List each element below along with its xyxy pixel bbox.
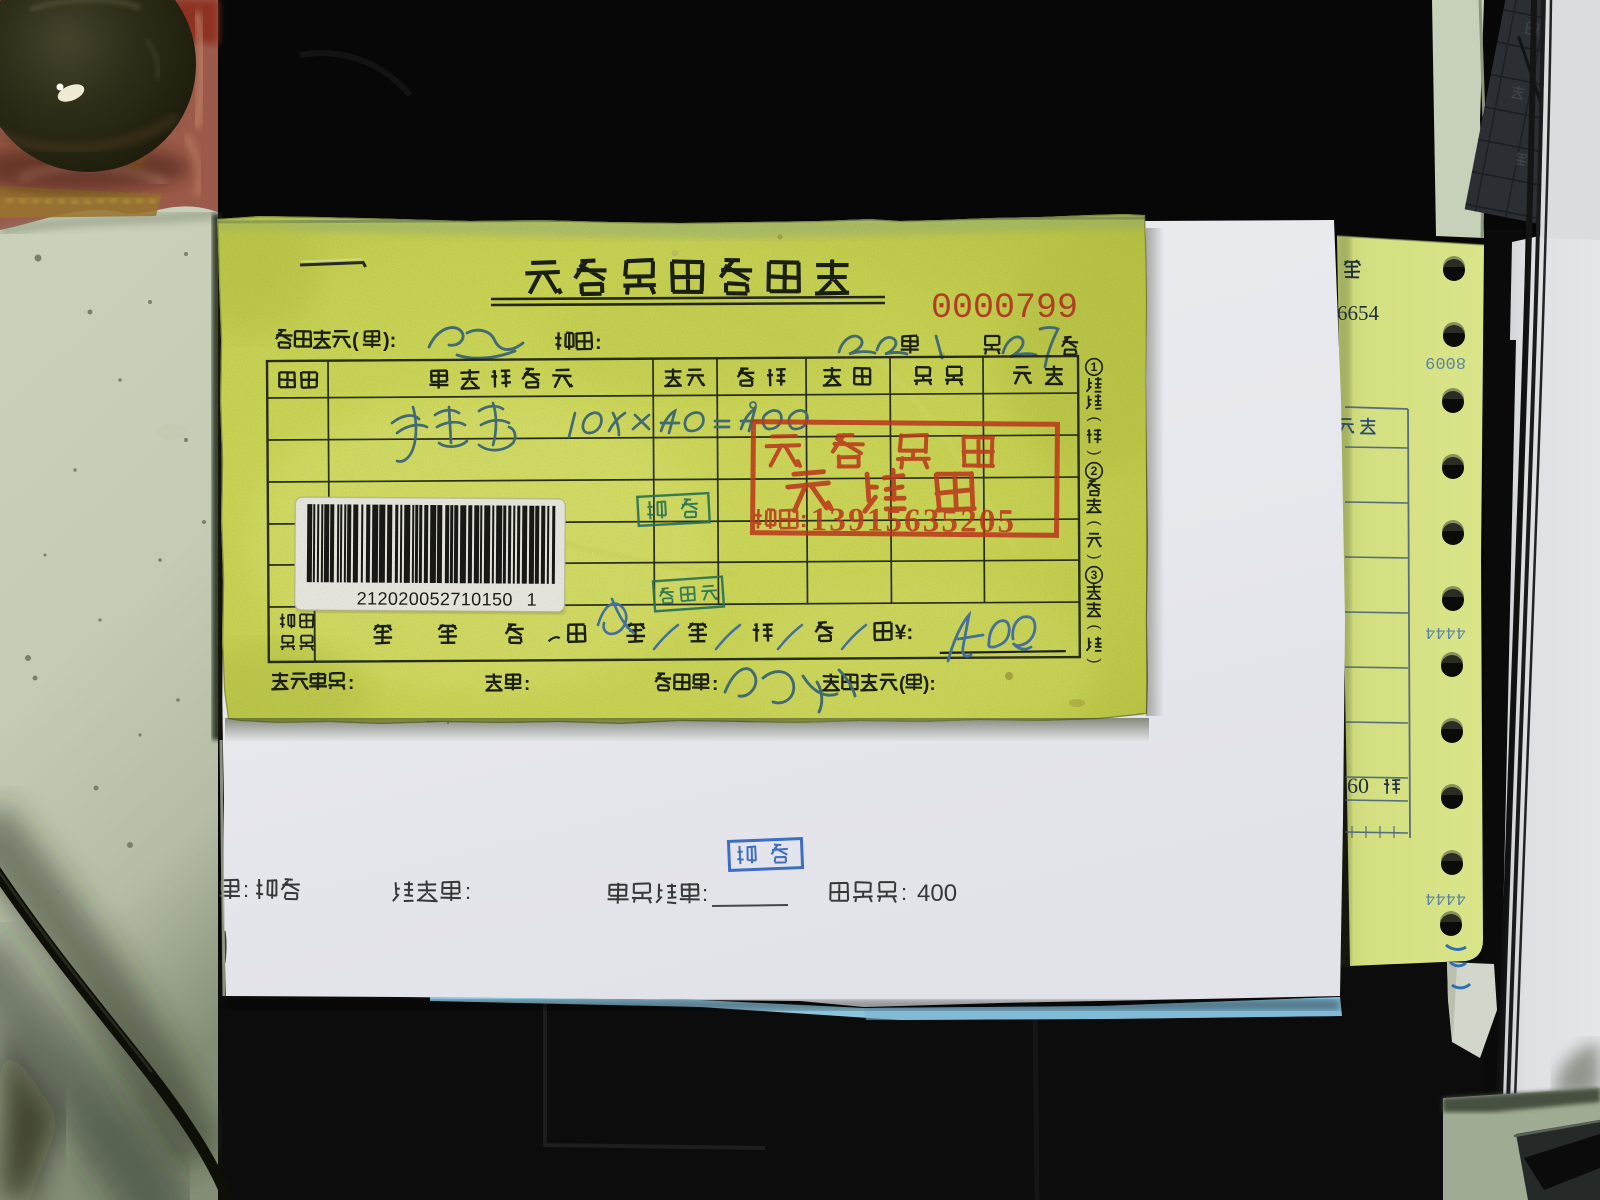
svg-text::: : — [243, 877, 249, 902]
svg-text:4444: 4444 — [1425, 888, 1466, 907]
svg-text::: : — [465, 879, 471, 904]
svg-text:400: 400 — [917, 880, 957, 907]
svg-text:4444: 4444 — [1425, 622, 1466, 641]
svg-text::: : — [901, 880, 907, 905]
svg-text::: : — [702, 881, 708, 906]
svg-text:8009: 8009 — [1425, 352, 1466, 371]
